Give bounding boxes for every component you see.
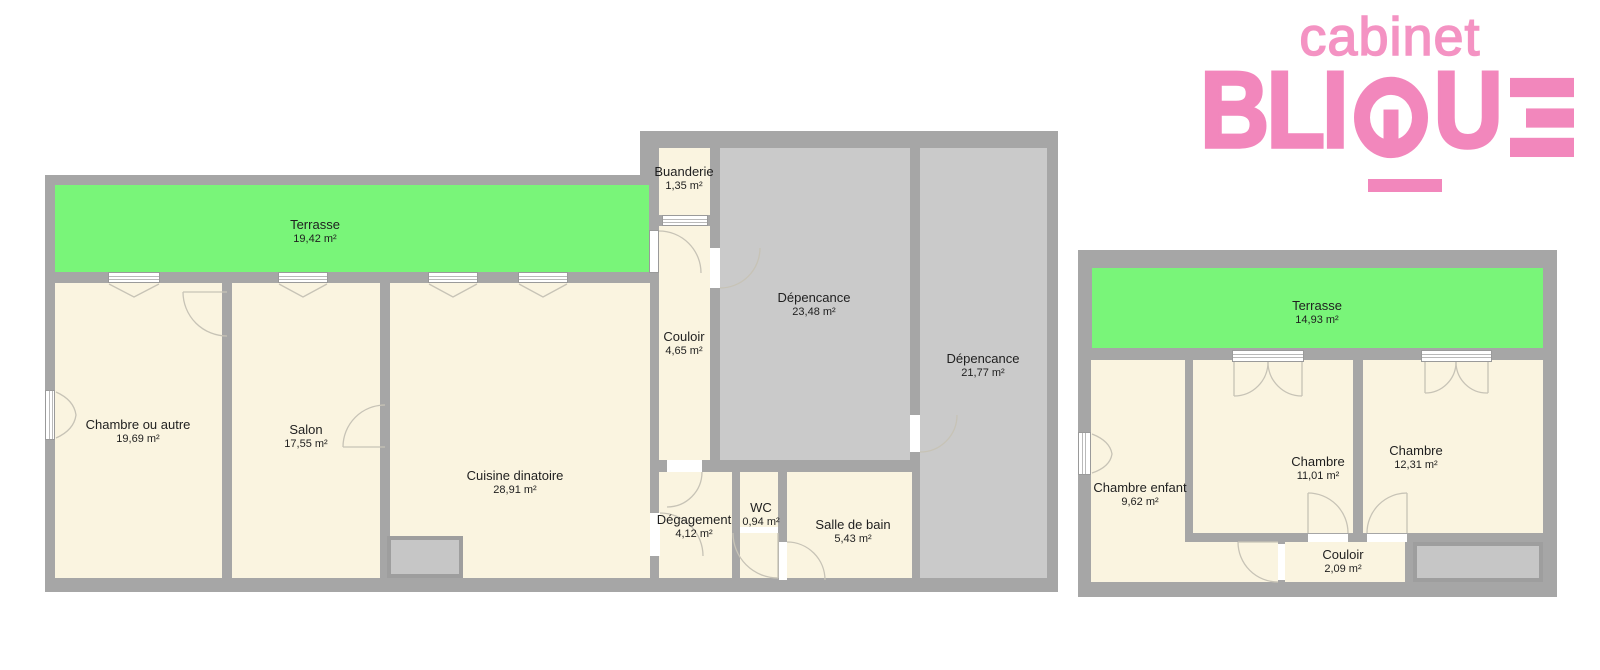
- door-chambre-b: [1367, 534, 1407, 542]
- french-window-chambre-b: [1421, 350, 1492, 362]
- room-wc-lobby: [740, 533, 778, 578]
- room-label-degagement: Dégagement 4,12 m²: [657, 513, 731, 541]
- kitchen-closet: [387, 536, 463, 578]
- logo-letter-e: [1510, 78, 1574, 157]
- storage-box-right: [1413, 542, 1543, 582]
- room-label-dependance-1: Dépencance 23,48 m²: [778, 291, 851, 319]
- logo-blique-wordmark: BLIU: [1200, 70, 1574, 158]
- window-salon-terrasse: [278, 272, 328, 283]
- floorplan-canvas: Terrasse 19,42 m² Chambre ou autre 19,69…: [0, 0, 1600, 670]
- room-label-salle-de-bain: Salle de bain 5,43 m²: [815, 518, 890, 546]
- window-cuisine-terrasse-1: [428, 272, 478, 283]
- room-label-chambre-b: Chambre 12,31 m²: [1389, 444, 1442, 472]
- door-couloir-degagement: [667, 460, 702, 472]
- room-label-terrasse-left: Terrasse 19,42 m²: [290, 218, 340, 246]
- room-label-terrasse-right: Terrasse 14,93 m²: [1292, 299, 1342, 327]
- room-label-wc: WC 0,94 m²: [742, 501, 779, 529]
- door-couloir-dependance1: [710, 248, 720, 288]
- room-label-salon: Salon 17,55 m²: [284, 423, 327, 451]
- logo-letter-u: U: [1434, 70, 1500, 151]
- window-chambre-west: [45, 390, 55, 440]
- room-terrasse-left: [55, 185, 649, 272]
- window-buanderie: [662, 215, 708, 226]
- room-label-chambre-ou-autre: Chambre ou autre 19,69 m²: [86, 418, 191, 446]
- room-label-couloir-right: Couloir 2,09 m²: [1322, 548, 1363, 576]
- door-chambre-a: [1308, 534, 1348, 542]
- french-window-chambre-a: [1232, 350, 1304, 362]
- room-chambre-enfant-strip: [1185, 542, 1278, 582]
- logo-letter-l: L: [1266, 70, 1322, 151]
- room-chambre-enfant: [1091, 360, 1185, 582]
- room-label-couloir-left: Couloir 4,65 m²: [663, 330, 704, 358]
- door-salle-de-bain: [779, 542, 787, 580]
- logo-letter-b: B: [1200, 70, 1266, 151]
- room-label-cuisine: Cuisine dinatoire 28,91 m²: [467, 469, 564, 497]
- logo-letter-i: I: [1322, 70, 1346, 151]
- logo-letter-q: [1354, 77, 1428, 158]
- room-cuisine-dinatoire: [390, 283, 650, 578]
- room-chambre-a: [1193, 360, 1353, 533]
- window-cuisine-terrasse-2: [518, 272, 568, 283]
- window-chambre-enfant-west: [1078, 432, 1091, 475]
- door-terrasse-couloir: [649, 230, 659, 273]
- door-couloir-right: [1278, 544, 1285, 580]
- room-label-dependance-2: Dépencance 21,77 m²: [947, 352, 1020, 380]
- room-label-chambre-a: Chambre 11,01 m²: [1291, 455, 1344, 483]
- logo-underline-bar: [1368, 179, 1442, 192]
- window-chambre-terrasse: [108, 272, 160, 283]
- room-label-chambre-enfant: Chambre enfant 9,62 m²: [1093, 481, 1186, 509]
- door-dependance2: [910, 415, 920, 452]
- room-label-buanderie: Buanderie 1,35 m²: [654, 165, 713, 193]
